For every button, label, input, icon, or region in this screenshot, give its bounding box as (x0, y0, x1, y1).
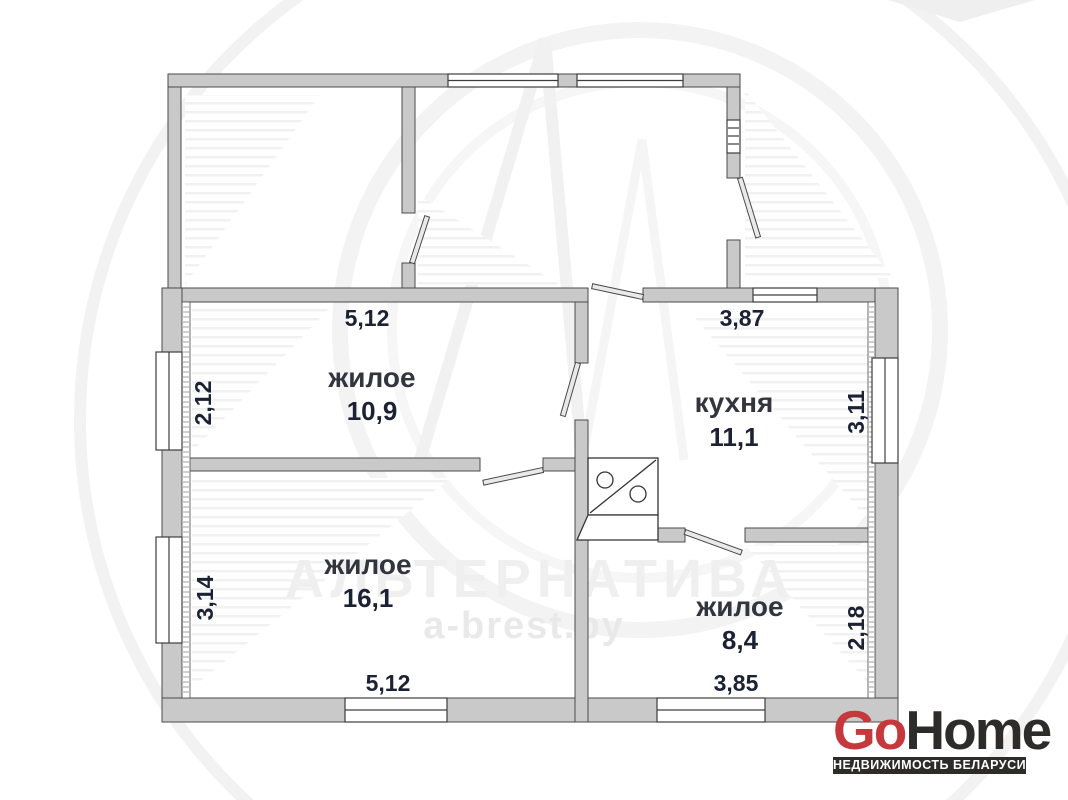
door-room2 (483, 468, 544, 486)
room3-area: 8,4 (722, 625, 759, 655)
dim-room3-height: 2,18 (843, 605, 869, 650)
floorplan-drawing: АЛЬТЕРНАТИВА a-brest.by (0, 0, 1068, 800)
floorplan-image: АЛЬТЕРНАТИВА a-brest.by (0, 0, 1068, 800)
room2-label: жилое (323, 549, 411, 580)
logo-tagline: НЕДВИЖИМОСТЬ БЕЛАРУСИ (833, 757, 1026, 774)
logo-go: Go (833, 699, 905, 761)
kitchen-label: кухня (695, 387, 774, 418)
dim-room1-height: 2,12 (190, 381, 216, 426)
wall-right-cold-2 (727, 153, 740, 178)
dim-kitchen-width: 3,87 (720, 305, 765, 331)
wall-c-2 (745, 528, 875, 542)
dim-room1-width: 5,12 (345, 305, 390, 331)
watermark-art (80, 0, 1068, 800)
wall-left-cold (168, 87, 181, 302)
dim-room2-width: 5,12 (366, 670, 411, 696)
wall-a-2 (575, 420, 588, 722)
room1-label: жилое (327, 362, 415, 393)
wall-main-bottom (162, 698, 898, 722)
gohome-logo-text: GoHome (833, 704, 1026, 756)
wall-main-right (875, 288, 898, 722)
wall-main-top-2 (643, 288, 753, 302)
watermark-site: a-brest.by (423, 605, 625, 647)
wall-b-1 (182, 458, 480, 471)
wall-a-1 (575, 302, 588, 363)
room1-area: 10,9 (347, 396, 398, 426)
wall-c-1 (658, 528, 685, 542)
room2-area: 16,1 (343, 583, 394, 613)
room3-label: жилое (695, 591, 783, 622)
wall-b-2 (543, 458, 575, 471)
wall-main-top-1 (162, 288, 588, 302)
stove-symbol (577, 458, 658, 540)
dim-room2-height: 3,14 (192, 575, 218, 620)
wall-cold-divider-1 (402, 87, 415, 213)
dim-kitchen-height: 3,11 (843, 390, 869, 434)
dim-room3-width: 3,85 (714, 670, 759, 696)
kitchen-area: 11,1 (709, 422, 758, 452)
logo-home: Home (905, 699, 1050, 761)
wall-right-cold-1 (727, 87, 740, 120)
gohome-logo: GoHome НЕДВИЖИМОСТЬ БЕЛАРУСИ (833, 704, 1026, 774)
